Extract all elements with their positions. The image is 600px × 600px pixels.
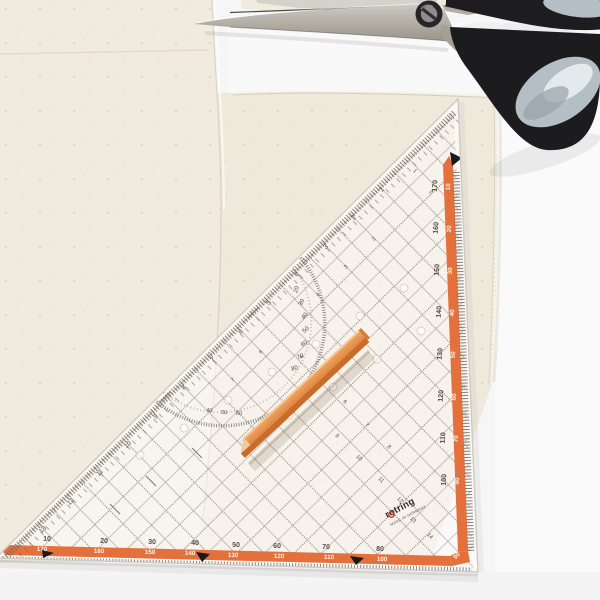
ruler-scale-label: 120	[438, 390, 446, 402]
ruler-scale-label: 150	[145, 549, 156, 556]
ruler-scale-label: 30	[148, 539, 156, 546]
ruler-scale-label: 50	[232, 542, 240, 549]
ruler-scale-label: 150	[434, 264, 442, 276]
ruler-scale-label: 10	[43, 536, 51, 543]
ruler-scale-label: 50	[450, 351, 458, 359]
ruler-scale-label: 40	[191, 540, 199, 547]
ruler-scale-label: 60	[273, 543, 281, 550]
ruler-scale-label: 60	[451, 393, 459, 401]
scissors-pivot-screw	[416, 1, 443, 28]
ruler-scale-label: 130	[228, 552, 239, 559]
ruler-scale-label: 70	[322, 544, 330, 551]
photo-canvas: Flat-lay photo: transparent triangular t…	[0, 0, 600, 600]
ruler-scale-label: 110	[440, 432, 448, 444]
ruler-scale-label: 20	[446, 225, 454, 233]
ruler-scale-label: 60	[236, 411, 242, 417]
ruler-scale-label: 40	[449, 309, 457, 317]
ruler-scale-label: 50	[221, 410, 228, 416]
ruler-scale-label: 80	[454, 477, 462, 485]
ruler-scale-label: 160	[94, 548, 105, 555]
ruler-scale-label: 70	[453, 435, 461, 443]
ruler-scale-label: 140	[436, 306, 444, 318]
ruler-scale-label: 30	[447, 267, 455, 275]
ruler-scale-label: 40	[206, 408, 213, 415]
ruler-scale-label: 110	[324, 554, 335, 561]
ruler-scale-label: 80	[376, 546, 384, 553]
ruler-scale-label: 100	[377, 556, 388, 563]
flatlay-photo: Flat-lay photo: transparent triangular t…	[0, 0, 600, 600]
ruler-scale-label: 170	[37, 546, 48, 553]
ruler-scale-label: 10	[445, 183, 453, 191]
ruler-scale-label: 160	[433, 222, 441, 234]
ruler-scale-label: 130	[437, 348, 445, 360]
ruler-scale-label: 140	[185, 550, 196, 557]
ruler-scale-label: 100	[441, 474, 449, 486]
ruler-scale-label: 20	[100, 538, 108, 545]
ruler-scale-label: 120	[274, 553, 285, 560]
